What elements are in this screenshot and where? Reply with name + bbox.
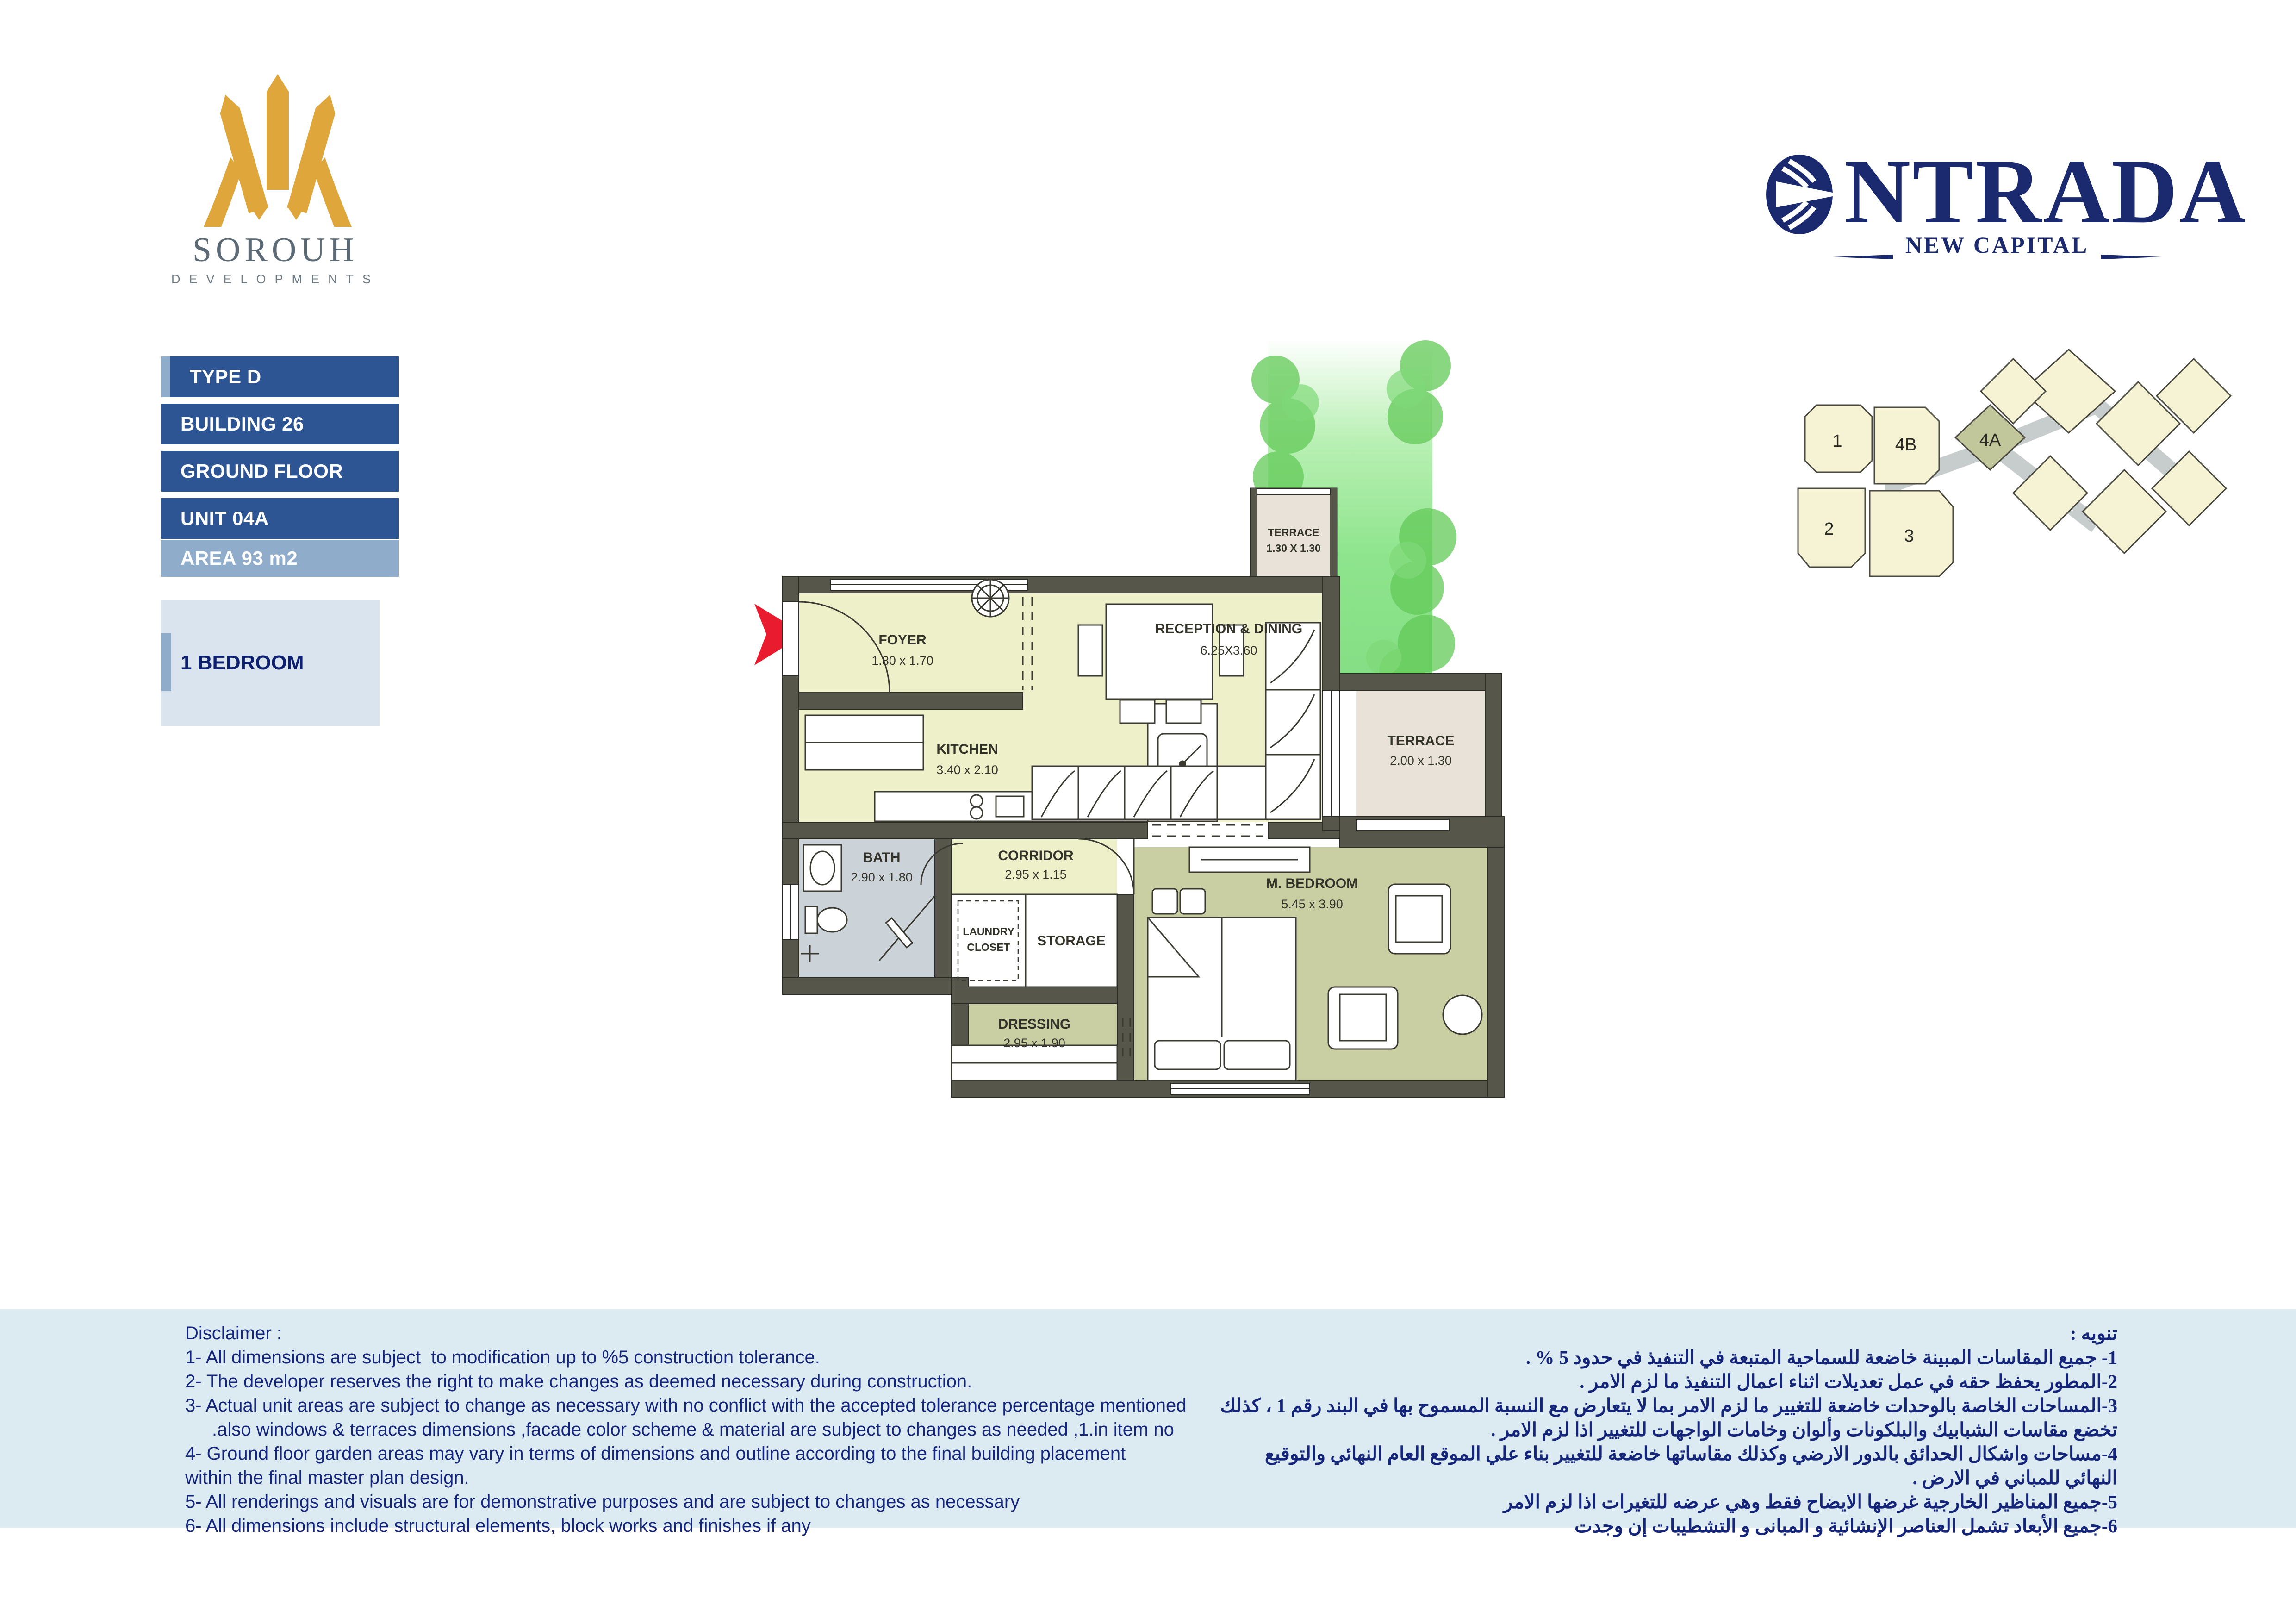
disclaimer-en-line-3b: .also windows & terraces dimensions ,fac…: [185, 1418, 1157, 1442]
sorouh-subtitle: DEVELOPMENTS: [153, 272, 398, 287]
site-label-3: 3: [1904, 526, 1914, 546]
foyer-dims: 1.80 x 1.70: [871, 654, 933, 668]
dressing-dims: 2.95 x 1.90: [1003, 1036, 1065, 1050]
unit-type-box: TYPE D: [170, 356, 399, 397]
disclaimer-ar-line-4: 4-مساحات واشكال الحدائق بالدور الارضي وك…: [1076, 1442, 2117, 1466]
dressing-name: DRESSING: [998, 1017, 1071, 1032]
sorouh-wordmark: SOROUH: [153, 231, 398, 270]
bath-dims: 2.90 x 1.80: [851, 870, 913, 884]
site-label-1: 1: [1832, 431, 1842, 451]
bedroom-count-label: 1 BEDROOM: [180, 600, 375, 726]
disclaimer-ar-line-6: 6-جميع الأبعاد تشمل العناصر الإنشائية و …: [1076, 1514, 2117, 1538]
disclaimer-en-line-6: 6- All dimensions include structural ele…: [185, 1514, 1157, 1538]
bedroom-box: 1 BEDROOM: [161, 600, 380, 726]
disclaimer-ar-line-4b: النهائي للمباني في الارض .: [1076, 1466, 2117, 1490]
terrace-1: TERRACE 1.30 X 1.30: [1251, 488, 1337, 579]
disclaimer-en-line-2: 2- The developer reserves the right to m…: [185, 1369, 1157, 1393]
type-accent: [161, 356, 170, 397]
floor-box: GROUND FLOOR: [161, 451, 399, 492]
disclaimer-ar-line-5: 5-جميع المناظير الخارجية غرضها الايضاح ف…: [1076, 1490, 2117, 1514]
disclaimer-ar-line-3b: تخضع مقاسات الشبابيك والبلكونات وألوان و…: [1076, 1418, 2117, 1442]
corridor-name: CORRIDOR: [998, 848, 1074, 863]
bedroom-dims: 5.45 x 3.90: [1281, 897, 1343, 911]
site-label-2: 2: [1824, 519, 1834, 539]
bedroom-name: M. BEDROOM: [1266, 876, 1358, 891]
site-plan: 1 4B 4A 2 3: [1773, 331, 2235, 600]
entrada-wordmark: NTRADA: [1844, 139, 2247, 244]
disclaimer-band: Disclaimer : 1- All dimensions are subje…: [0, 1309, 2296, 1528]
kitchen-name: KITCHEN: [936, 742, 998, 757]
building-box: BUILDING 26: [161, 404, 399, 444]
disclaimer-en-line-1: 1- All dimensions are subject to modific…: [185, 1345, 1157, 1369]
disclaimer-en-line-5: 5- All renderings and visuals are for de…: [185, 1490, 1157, 1514]
terrace2-dims: 2.00 x 1.30: [1390, 754, 1452, 768]
disclaimer-ar-line-2: 2-المطور يحفظ حقه في عمل تعديلات اثناء ا…: [1076, 1369, 2117, 1393]
disclaimer-ar-line-3: 3-المساحات الخاصة بالوحدات خاضعة للتغيير…: [1076, 1393, 2117, 1418]
terrace1-name: TERRACE: [1268, 526, 1319, 538]
entrada-logo-icon: [1762, 153, 1846, 236]
bedroom-accent: [161, 633, 171, 691]
corridor-floor: [952, 839, 1117, 894]
area-box: AREA 93 m2: [161, 540, 399, 577]
site-label-4a: 4A: [1979, 431, 2001, 450]
disclaimer-english: Disclaimer : 1- All dimensions are subje…: [185, 1321, 1157, 1538]
disclaimer-en-title: Disclaimer :: [185, 1321, 1157, 1345]
wardrobe: [952, 1045, 1117, 1081]
floor-plan: TERRACE 1.30 X 1.30: [782, 338, 1509, 1106]
terrace2-name: TERRACE: [1387, 733, 1454, 749]
corridor-dims: 2.95 x 1.15: [1005, 868, 1067, 881]
entrada-rule-left: [1833, 254, 1893, 260]
bath-name: BATH: [863, 850, 900, 865]
disclaimer-en-line-4b: within the final master plan design.: [185, 1466, 1157, 1490]
storage-name: STORAGE: [1037, 933, 1106, 949]
sorouh-logo: [185, 74, 370, 231]
site-label-4b: 4B: [1895, 435, 1916, 455]
disclaimer-ar-title: تنويه :: [1076, 1321, 2117, 1345]
reception-dims: 6.25X3.60: [1200, 643, 1257, 657]
floorplan-sheet: SOROUH DEVELOPMENTS NTRADA NEW CAPITAL T…: [0, 0, 2296, 1624]
disclaimer-ar-line-1: 1- جميع المقاسات المبينة خاضعة للسماحية …: [1076, 1345, 2117, 1369]
laundry-name-1: LAUNDRY: [963, 925, 1014, 937]
entrada-rule-right: [2101, 254, 2161, 260]
reception-name: RECEPTION & DINING: [1155, 621, 1302, 637]
disclaimer-arabic: تنويه : 1- جميع المقاسات المبينة خاضعة ل…: [1076, 1321, 2117, 1538]
terrace1-dims: 1.30 X 1.30: [1266, 542, 1321, 554]
disclaimer-en-line-3: 3- Actual unit areas are subject to chan…: [185, 1393, 1157, 1418]
entrada-subtitle: NEW CAPITAL: [1893, 231, 2101, 258]
disclaimer-en-line-4: 4- Ground floor garden areas may vary in…: [185, 1442, 1157, 1466]
foyer-name: FOYER: [878, 632, 927, 648]
kitchen-dims: 3.40 x 2.10: [936, 763, 998, 777]
laundry-name-2: CLOSET: [967, 941, 1010, 953]
compass-icon: [972, 580, 1009, 617]
laundry-floor: [952, 894, 1026, 987]
sorouh-logo-icon: [185, 74, 370, 231]
unit-number-box: UNIT 04A: [161, 498, 399, 539]
